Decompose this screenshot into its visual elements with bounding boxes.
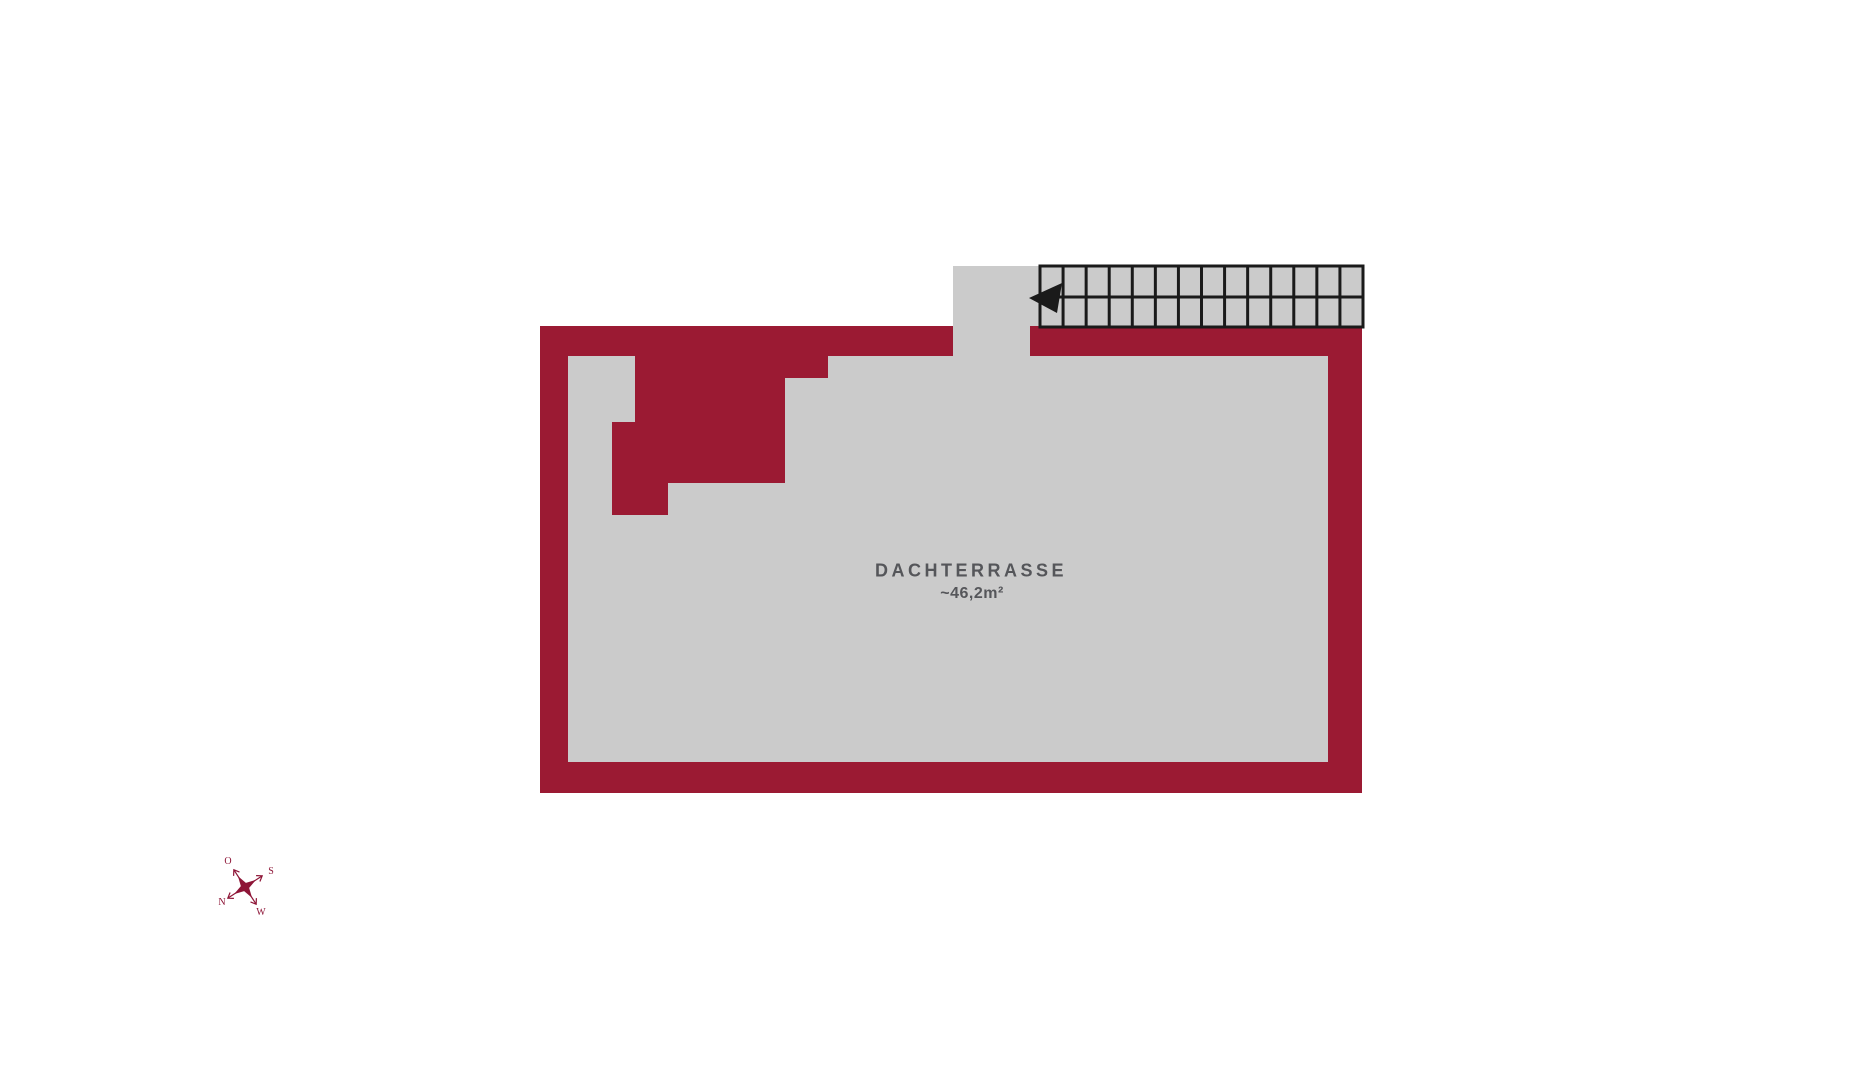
wall-top-left-segment xyxy=(540,326,953,356)
compass-label-south: S xyxy=(268,866,274,877)
compass-label-north: N xyxy=(218,897,225,908)
wall-bottom xyxy=(540,762,1362,793)
compass-rose: O S N W xyxy=(195,837,305,937)
wall-right xyxy=(1328,326,1362,793)
compass-star-icon xyxy=(227,869,263,905)
room-label: DACHTERRASSE xyxy=(875,561,1067,582)
wall-top-right-segment xyxy=(1030,326,1362,356)
stair-landing xyxy=(953,266,1040,356)
compass-label-west: W xyxy=(256,907,266,918)
compass-label-east: O xyxy=(224,856,231,867)
wall-left xyxy=(540,326,568,793)
floorplan-page: DACHTERRASSE ~46,2m² O S N W xyxy=(0,0,1854,1080)
room-area-label: ~46,2m² xyxy=(940,585,1004,603)
